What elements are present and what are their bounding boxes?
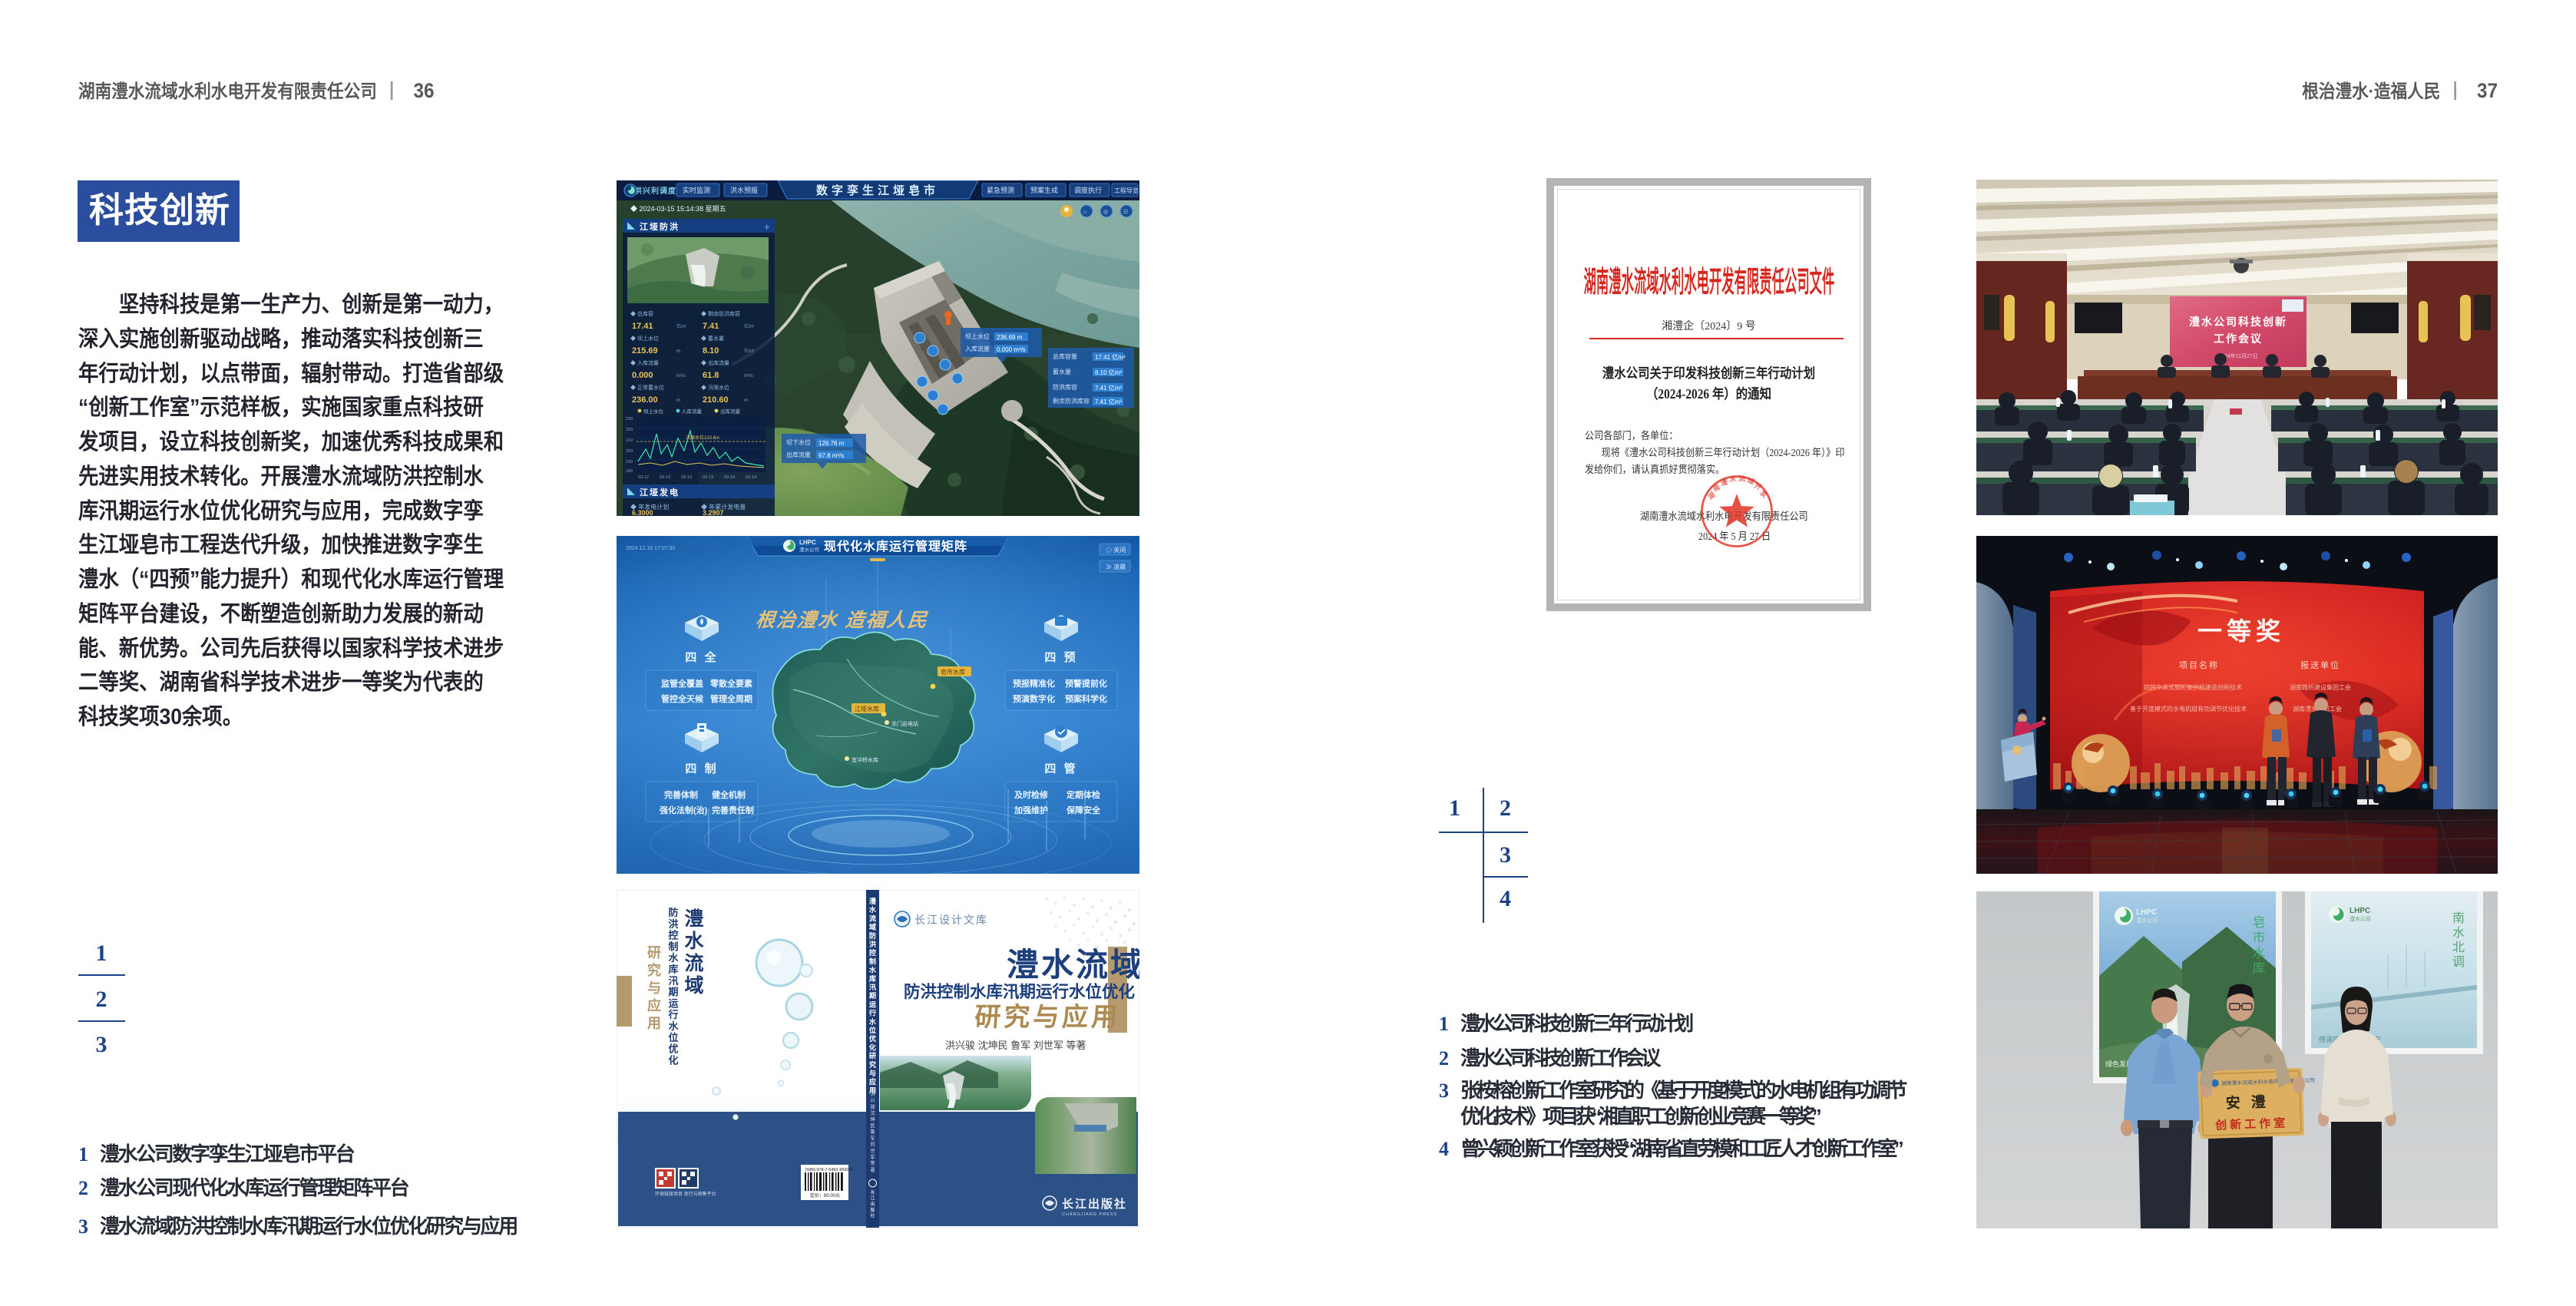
svg-text:215.69: 215.69 [632,346,658,355]
svg-text:零散全要素: 零散全要素 [709,678,752,689]
svg-text:67.8 m³/s: 67.8 m³/s [818,452,844,459]
svg-text:四 预: 四 预 [1044,651,1077,664]
svg-text:LHPC: LHPC [2349,907,2370,915]
svg-text:澧水公司: 澧水公司 [2349,915,2371,922]
svg-text:亿m³: 亿m³ [744,348,754,354]
svg-text:0.000 m³/s: 0.000 m³/s [997,346,1026,353]
svg-text:创新工作室: 创新工作室 [2214,1116,2289,1132]
svg-text:6.3000: 6.3000 [632,509,653,516]
svg-text:LHPC: LHPC [799,539,816,546]
svg-text:紧急预测: 紧急预测 [987,186,1014,194]
svg-text:研究与应用: 研究与应用 [647,945,661,1031]
svg-text:☷: ☷ [1123,210,1128,215]
svg-text:预警提前化: 预警提前化 [1065,678,1107,689]
svg-text:预案科学化: 预案科学化 [1065,693,1107,704]
svg-text:03-14: 03-14 [724,475,735,480]
svg-text:健全机制: 健全机制 [712,789,746,800]
svg-text:澧水公司: 澧水公司 [799,546,819,553]
svg-text:m: m [676,398,680,403]
svg-text:湖南路桥建设集团工会: 湖南路桥建设集团工会 [2290,683,2351,691]
svg-text:安澧: 安澧 [2225,1093,2277,1112]
svg-text:03-13: 03-13 [681,475,692,480]
svg-text:230: 230 [626,417,633,422]
svg-text:四 全: 四 全 [685,650,718,664]
svg-text:m³/s: m³/s [744,374,753,379]
svg-text:7.41: 7.41 [703,322,719,331]
svg-text:四 管: 四 管 [1044,762,1077,775]
svg-text:澧水流域: 澧水流域 [684,908,704,997]
svg-text:汛限水位210.6m: 汛限水位210.6m [686,435,719,441]
svg-text:强化法制(治): 强化法制(治) [660,805,708,815]
svg-text:◆ 蓄水量: ◆ 蓄水量 [701,335,724,342]
svg-text:定价：80.00元: 定价：80.00元 [810,1192,840,1199]
svg-text:项目名称: 项目名称 [2179,660,2219,670]
svg-text:◆ 剩余防洪库容: ◆ 剩余防洪库容 [701,310,740,317]
svg-text:03-12: 03-12 [638,475,649,480]
svg-text:✛: ✛ [764,223,770,231]
svg-text:3.2907: 3.2907 [703,509,724,516]
svg-text:03-13: 03-13 [703,475,713,480]
svg-text:现代化水库运行管理矩阵: 现代化水库运行管理矩阵 [824,539,967,554]
svg-text:17.41: 17.41 [632,322,653,331]
svg-text:流: 流 [1738,474,1746,483]
svg-text:洪水预报: 洪水预报 [730,186,758,194]
svg-text:澧水流域: 澧水流域 [1007,947,1139,983]
svg-text:◆ 出库流量: ◆ 出库流量 [701,359,729,366]
svg-text:洪兴骏 沈坤民 鲁军 刘世军 等著: 洪兴骏 沈坤民 鲁军 刘世军 等著 [945,1040,1086,1051]
svg-text:报送单位: 报送单位 [2300,660,2340,670]
svg-text:LHPC: LHPC [2136,908,2157,917]
svg-text:210.60: 210.60 [703,395,729,405]
svg-text:实时监测: 实时监测 [683,186,710,194]
svg-text:8.10: 8.10 [703,346,719,355]
svg-text:监管全覆盖: 监管全覆盖 [661,678,703,689]
svg-text:开: 开 [1753,481,1763,491]
svg-text:◆ 汛限水位: ◆ 汛限水位 [701,384,729,391]
svg-text:236.69 m: 236.69 m [997,334,1023,341]
svg-text:数字孪生江垭皂市: 数字孪生江垭皂市 [816,184,939,197]
svg-text:四跨中承式钢桁架拱桥建造创新技术: 四跨中承式钢桁架拱桥建造创新技术 [2144,683,2242,691]
svg-text:⌂: ⌂ [1083,210,1086,215]
svg-text:环保链接项目 发行与销售平台: 环保链接项目 发行与销售平台 [655,1191,716,1197]
svg-text:亿m³: 亿m³ [676,323,686,329]
svg-text:根治澧水 造福人民: 根治澧水 造福人民 [755,610,930,631]
svg-text:工程导览: 工程导览 [1114,187,1139,194]
svg-text:≫ 凌晨: ≫ 凌晨 [1106,563,1126,570]
svg-text:防洪库容: 防洪库容 [1053,383,1077,391]
svg-text:0.000: 0.000 [632,371,653,380]
svg-text:江垭发电: 江垭发电 [640,487,680,498]
svg-text:保障安全: 保障安全 [1066,805,1101,815]
svg-text:澧水流域防洪控制水库汛期运行水位优化研究与应用: 澧水流域防洪控制水库汛期运行水位优化研究与应用 [868,897,877,1094]
svg-text:CHANGJIANG PRESS: CHANGJIANG PRESS [1062,1212,1117,1217]
svg-text:江垭防洪: 江垭防洪 [640,221,680,232]
svg-text:一等奖: 一等奖 [2197,617,2285,645]
svg-text:坝上水位: 坝上水位 [643,408,664,415]
svg-text:长江出版社: 长江出版社 [870,1189,875,1218]
svg-text:入库流量: 入库流量 [682,408,703,415]
svg-text:220: 220 [626,428,633,432]
svg-text:210: 210 [626,438,633,443]
svg-text:236.00: 236.00 [632,395,658,405]
svg-text:126.76 m: 126.76 m [818,440,845,447]
svg-text:管理全周期: 管理全周期 [710,693,752,704]
svg-text:ISBN 978-7-5492-9560-8: ISBN 978-7-5492-9560-8 [805,1168,852,1172]
svg-text:皂市水库: 皂市水库 [941,668,965,676]
svg-text:入库流量: 入库流量 [965,345,990,352]
svg-text:预演数字化: 预演数字化 [1013,693,1055,704]
svg-text:关门岩电站: 关门岩电站 [891,720,918,727]
svg-text:预案生成: 预案生成 [1030,186,1058,194]
svg-text:出库流量: 出库流量 [786,451,811,458]
svg-text:防洪控制水库汛期运行水位优化: 防洪控制水库汛期运行水位优化 [667,907,679,1066]
svg-text:出库流量: 出库流量 [720,408,741,415]
svg-text:加强维护: 加强维护 [1014,805,1048,815]
svg-text:完善体制: 完善体制 [664,789,698,800]
svg-text:180: 180 [626,469,633,474]
svg-text:澧水公司科技创新: 澧水公司科技创新 [2189,316,2287,328]
svg-text:及时检修: 及时检修 [1014,789,1049,800]
svg-text:定期体检: 定期体检 [1066,789,1100,800]
svg-text:基于开度模式的水电机组有功调节优化技术: 基于开度模式的水电机组有功调节优化技术 [2130,705,2247,713]
svg-text:◆ 正常蓄水位: ◆ 正常蓄水位 [630,384,664,391]
svg-text:◆ 坝上水位: ◆ 坝上水位 [630,335,659,342]
svg-text:研究与应用: 研究与应用 [974,1003,1122,1032]
svg-text:m: m [744,398,748,403]
svg-text:长江出版社: 长江出版社 [1062,1197,1127,1211]
svg-text:03-13: 03-13 [660,475,670,480]
svg-text:8.10 亿m³: 8.10 亿m³ [1095,369,1122,376]
svg-text:7.41 亿m³: 7.41 亿m³ [1095,398,1122,405]
svg-text:17.41 亿m³: 17.41 亿m³ [1095,353,1126,361]
svg-text:南: 南 [1711,482,1721,493]
svg-text:◆ 总库容: ◆ 总库容 [630,310,653,317]
svg-text:61.8: 61.8 [703,371,719,380]
svg-text:坝上水位: 坝上水位 [965,332,990,340]
svg-text:调度执行: 调度执行 [1074,186,1102,194]
svg-text:2024.12.18 17:07:30: 2024.12.18 17:07:30 [626,546,675,551]
svg-text:200: 200 [626,449,633,454]
svg-text:m: m [676,349,680,354]
svg-text:江垭水库: 江垭水库 [855,705,879,713]
svg-text:◇ 关闭: ◇ 关闭 [1106,546,1126,554]
svg-text:防洪控制水库汛期运行水位优化: 防洪控制水库汛期运行水位优化 [904,982,1136,1001]
svg-text:洪兴骏沈坤民鲁军刘世军等著: 洪兴骏沈坤民鲁军刘世军等著 [870,1090,875,1172]
svg-text:宜冲桥水库: 宜冲桥水库 [852,756,878,763]
svg-text:◆ 2024-03-15 15:14:38 星期五: ◆ 2024-03-15 15:14:38 星期五 [630,205,726,213]
svg-text:m³/s: m³/s [676,374,686,379]
svg-text:工作会议: 工作会议 [2214,332,2263,345]
svg-text:总库容量: 总库容量 [1053,352,1077,360]
svg-text:剩余防洪库容: 剩余防洪库容 [1053,397,1090,405]
svg-text:03-14: 03-14 [746,475,756,480]
svg-text:◆ 入库流量: ◆ 入库流量 [630,359,659,366]
svg-text:7.41 亿m³: 7.41 亿m³ [1095,384,1122,392]
svg-text:坝下水位: 坝下水位 [786,438,811,446]
svg-text:预报精准化: 预报精准化 [1013,678,1055,689]
svg-text:亿m³: 亿m³ [744,323,754,329]
svg-text:◎: ◎ [1103,210,1108,215]
svg-text:190: 190 [626,460,633,465]
svg-text:管控全天候: 管控全天候 [661,693,704,704]
svg-text:蓄水量: 蓄水量 [1053,368,1071,375]
svg-text:长江设计文库: 长江设计文库 [914,914,988,926]
svg-text:皂市水库: 皂市水库 [2253,915,2266,976]
svg-text:四 制: 四 制 [685,762,718,775]
svg-text:澧水公司: 澧水公司 [2136,917,2158,924]
